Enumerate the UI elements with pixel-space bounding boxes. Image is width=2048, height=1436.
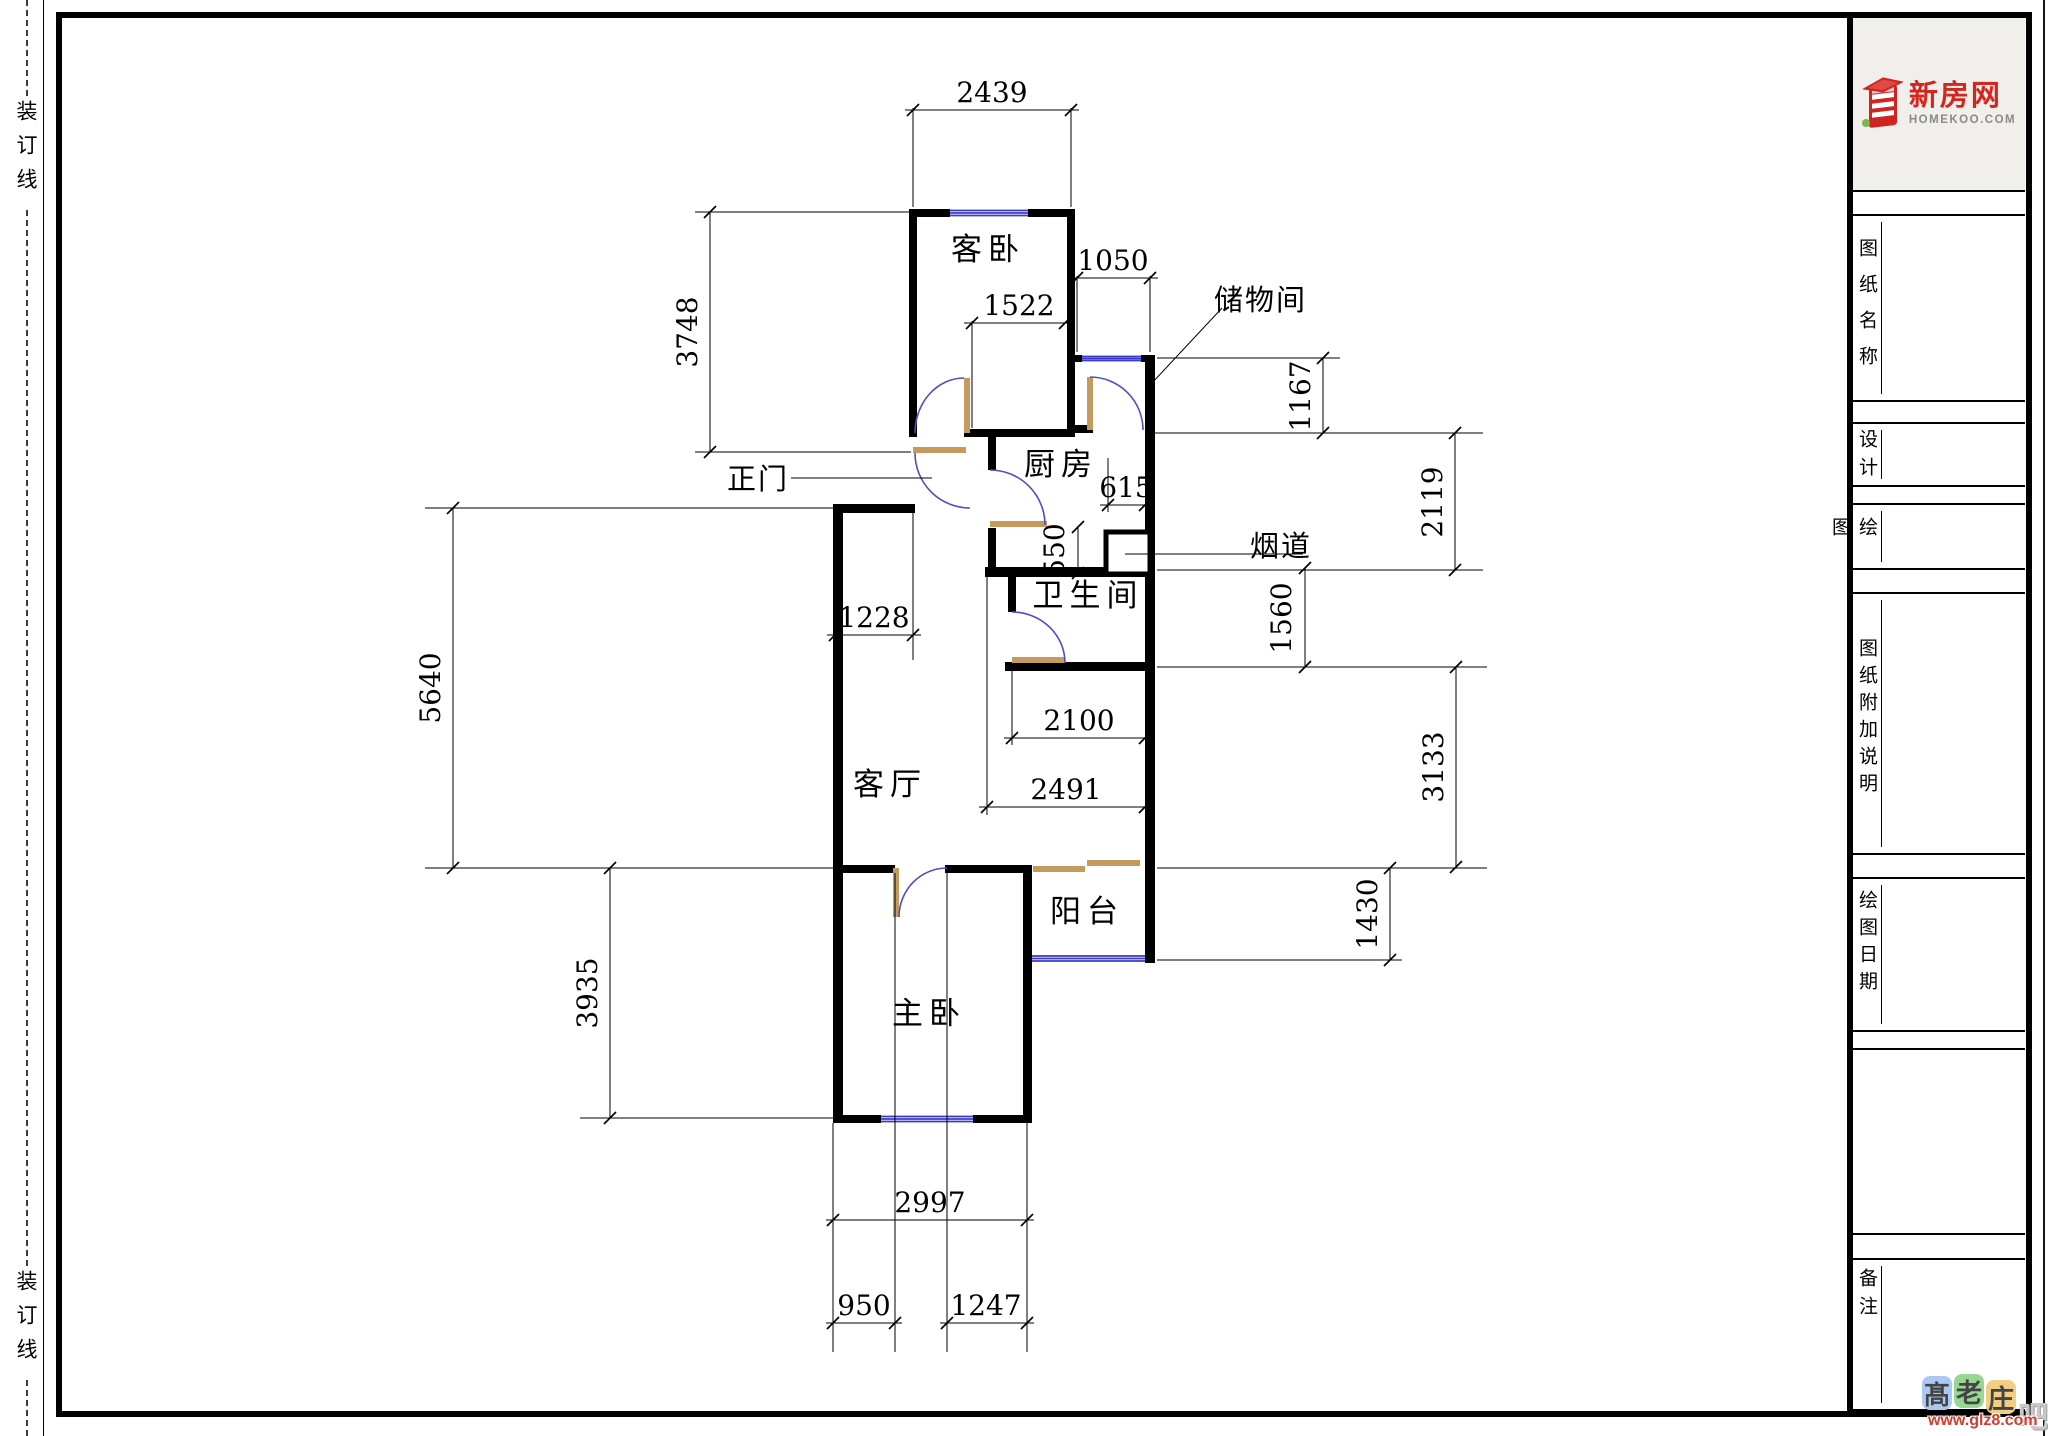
room-label-guest-bedroom: 客卧 — [951, 232, 1025, 268]
titleblock-section-notes: 图纸附加说明 — [1853, 592, 2025, 855]
section-label: 图纸附加说明 — [1855, 638, 1880, 800]
dim-1522: 1522 — [983, 289, 1054, 322]
titleblock-section-drafting: 绘图 — [1853, 503, 2025, 570]
dim-3133: 3133 — [1417, 731, 1450, 802]
section-label: 绘图 — [1855, 517, 1880, 568]
dim-5640: 5640 — [414, 652, 447, 723]
section-label: 设计 — [1855, 429, 1880, 485]
homekoo-logo-icon — [1862, 77, 1904, 131]
dim-1167: 1167 — [1284, 360, 1317, 431]
callout-flue: 烟道 — [1250, 529, 1312, 563]
titleblock-section-design: 设计 — [1853, 422, 2025, 487]
dim-615: 615 — [1099, 471, 1152, 504]
dim-2491: 2491 — [1030, 773, 1101, 806]
section-divider — [1881, 600, 1882, 847]
section-divider — [1881, 430, 1882, 479]
section-divider — [1881, 885, 1882, 1024]
dim-2439: 2439 — [956, 76, 1027, 109]
room-label-balcony: 阳台 — [1050, 894, 1124, 930]
watermark-tile-2: 老 — [1954, 1374, 1984, 1408]
watermark-url: www.glz8.com — [1928, 1412, 2038, 1430]
brand-name: 新房网 — [1909, 82, 2016, 111]
dim-2100: 2100 — [1043, 704, 1114, 737]
dim-3935: 3935 — [571, 957, 604, 1028]
section-label: 图纸名称 — [1855, 238, 1880, 382]
dim-950: 950 — [837, 1289, 890, 1322]
dim-1247: 1247 — [950, 1289, 1021, 1322]
section-divider — [1881, 1266, 1882, 1403]
dim-1560: 1560 — [1265, 582, 1298, 653]
walls — [833, 209, 1155, 1123]
watermark-tile-3: 庄 — [1986, 1380, 2016, 1414]
callout-main-door: 正门 — [727, 462, 789, 496]
floor-plan: 客卧 厨房 卫生间 客厅 阳台 主卧 储物间 正门 烟道 2439 1050 1… — [0, 0, 2048, 1436]
brand-domain: HOMEKOO.COM — [1909, 115, 2016, 127]
dim-550: 550 — [1038, 523, 1071, 576]
door-leaves — [893, 377, 1140, 917]
section-label: 备注 — [1855, 1268, 1880, 1324]
dim-1228: 1228 — [838, 601, 909, 634]
titleblock-section-date: 绘图日期 — [1853, 877, 2025, 1032]
watermark-tile-1: 髙 — [1922, 1376, 1952, 1410]
dim-2997: 2997 — [894, 1186, 965, 1219]
section-divider — [1881, 222, 1882, 394]
dim-1050: 1050 — [1077, 244, 1148, 277]
logo-box: 新房网 HOMEKOO.COM — [1853, 18, 2025, 192]
titleblock-section-empty — [1853, 1048, 2025, 1235]
room-label-living: 客厅 — [853, 767, 927, 803]
titleblock-section-drawing-name: 图纸名称 — [1853, 214, 2025, 402]
room-label-bathroom: 卫生间 — [1033, 578, 1144, 614]
dim-1430: 1430 — [1351, 878, 1384, 949]
flue-box — [1106, 532, 1150, 574]
dim-3748: 3748 — [671, 296, 704, 367]
dimension-lines — [425, 108, 1487, 1352]
brand-text: 新房网 HOMEKOO.COM — [1909, 82, 2016, 127]
drawing-sheet: 装订线 装订线 — [0, 0, 2048, 1436]
tick-marks — [447, 104, 1462, 1329]
door-arcs — [899, 377, 1143, 917]
room-label-kitchen: 厨房 — [1024, 447, 1098, 483]
section-divider — [1881, 511, 1882, 562]
section-label: 绘图日期 — [1855, 890, 1880, 998]
dim-2119: 2119 — [1416, 466, 1449, 537]
room-label-master-bedroom: 主卧 — [892, 996, 966, 1032]
callout-storage: 储物间 — [1214, 283, 1307, 317]
